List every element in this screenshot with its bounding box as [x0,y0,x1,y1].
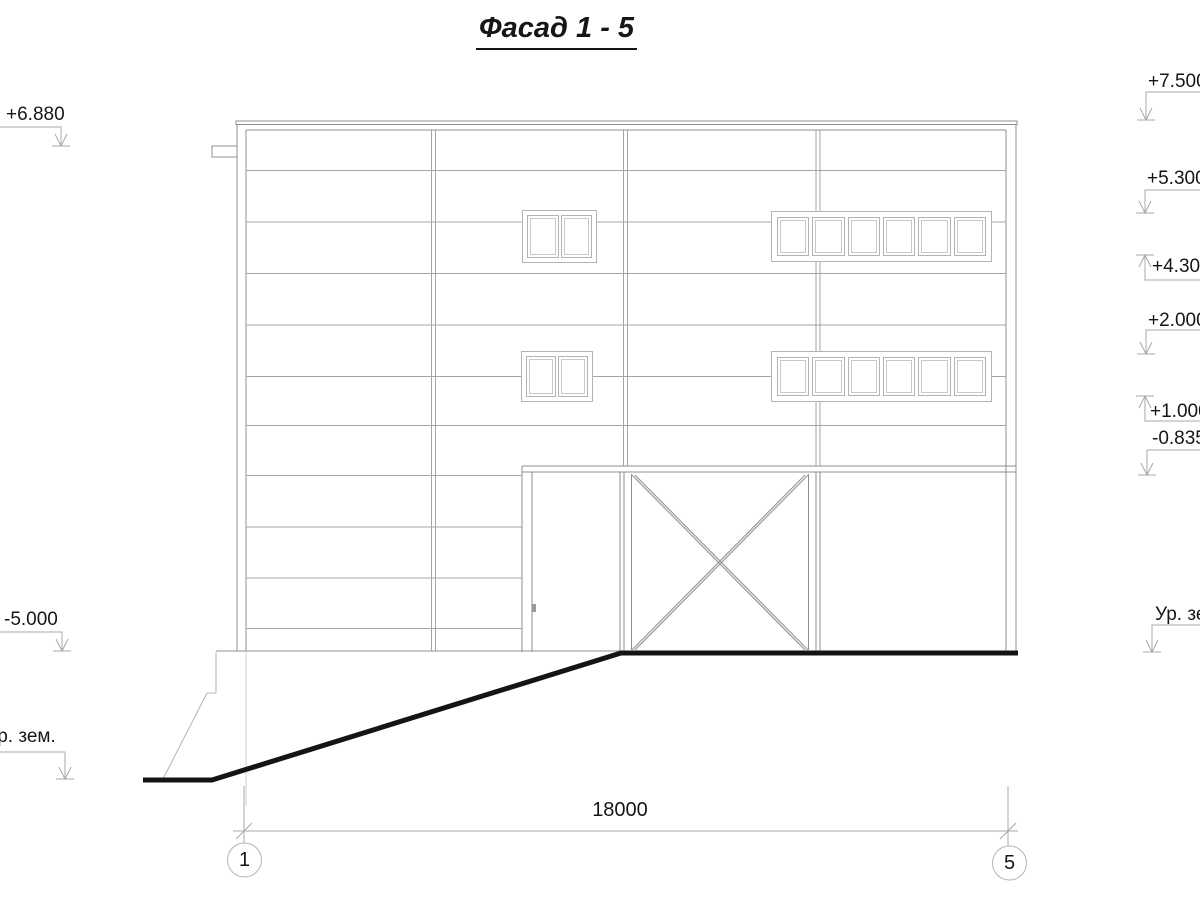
elevation-label-right-0835: -0.835 [1152,428,1200,450]
elevation-label-left-6880: +6.880 [6,104,65,126]
window-glass [529,359,553,394]
window-glass [921,360,947,393]
window-glass [815,360,841,393]
window-pane [954,217,986,256]
panel-joints [432,130,821,651]
window-pane [812,357,844,396]
elevation-marker-arrows [0,92,1200,779]
window-pane [812,217,844,256]
axis-bubble-5: 5 [992,846,1027,880]
ground-level-label-right: Ур. зем. [1155,604,1200,626]
window-floor2-left [522,210,597,263]
window-glass [886,220,912,253]
window-glass [851,220,877,253]
window-glass [957,220,983,253]
window-glass [851,360,877,393]
window-band-floor2-right [771,211,992,262]
elevation-label-right-1000: +1.000 [1150,401,1200,423]
window-glass [780,360,806,393]
window-glass [564,218,590,255]
window-pane [883,357,915,396]
window-pane [526,356,556,397]
window-pane [954,357,986,396]
axis-bubble-1: 1 [227,843,262,877]
door-handle [533,604,537,612]
window-glass [886,360,912,393]
window-pane [561,215,593,258]
foundation-lines [163,651,246,806]
x-brace [632,475,808,650]
window-glass [780,220,806,253]
ground-level-label-left: Ур. зем. [0,726,56,748]
elevation-label-right-2000: +2.000 [1148,310,1200,332]
window-pane [527,215,559,258]
window-glass [815,220,841,253]
window-floor1-left [521,351,593,402]
drawing-title: Фасад 1 - 5 [476,12,637,50]
elevation-label-right-4300: +4.300 [1152,256,1200,278]
ground-floor-structure [522,466,820,652]
ground-line [143,653,1018,780]
window-pane [777,357,809,396]
window-pane [777,217,809,256]
dimension-value: 18000 [570,799,670,822]
elevation-label-right-7500: +7.500 [1148,71,1200,93]
elevation-label-right-5300: +5.300 [1147,168,1200,190]
window-band-floor1-right [771,351,992,402]
facade-drawing [0,0,1200,900]
window-glass [561,359,585,394]
ground-floor-beam [522,466,1016,472]
window-glass [957,360,983,393]
facade-elevation-sheet: Фасад 1 - 5 +6.880 -5.000 Ур. зем. +7.50… [0,0,1200,900]
window-pane [558,356,588,397]
window-glass [530,218,556,255]
window-pane [848,357,880,396]
window-pane [918,357,950,396]
elevation-label-left-5000: -5.000 [4,609,58,631]
window-pane [918,217,950,256]
window-pane [848,217,880,256]
window-pane [883,217,915,256]
window-glass [921,220,947,253]
